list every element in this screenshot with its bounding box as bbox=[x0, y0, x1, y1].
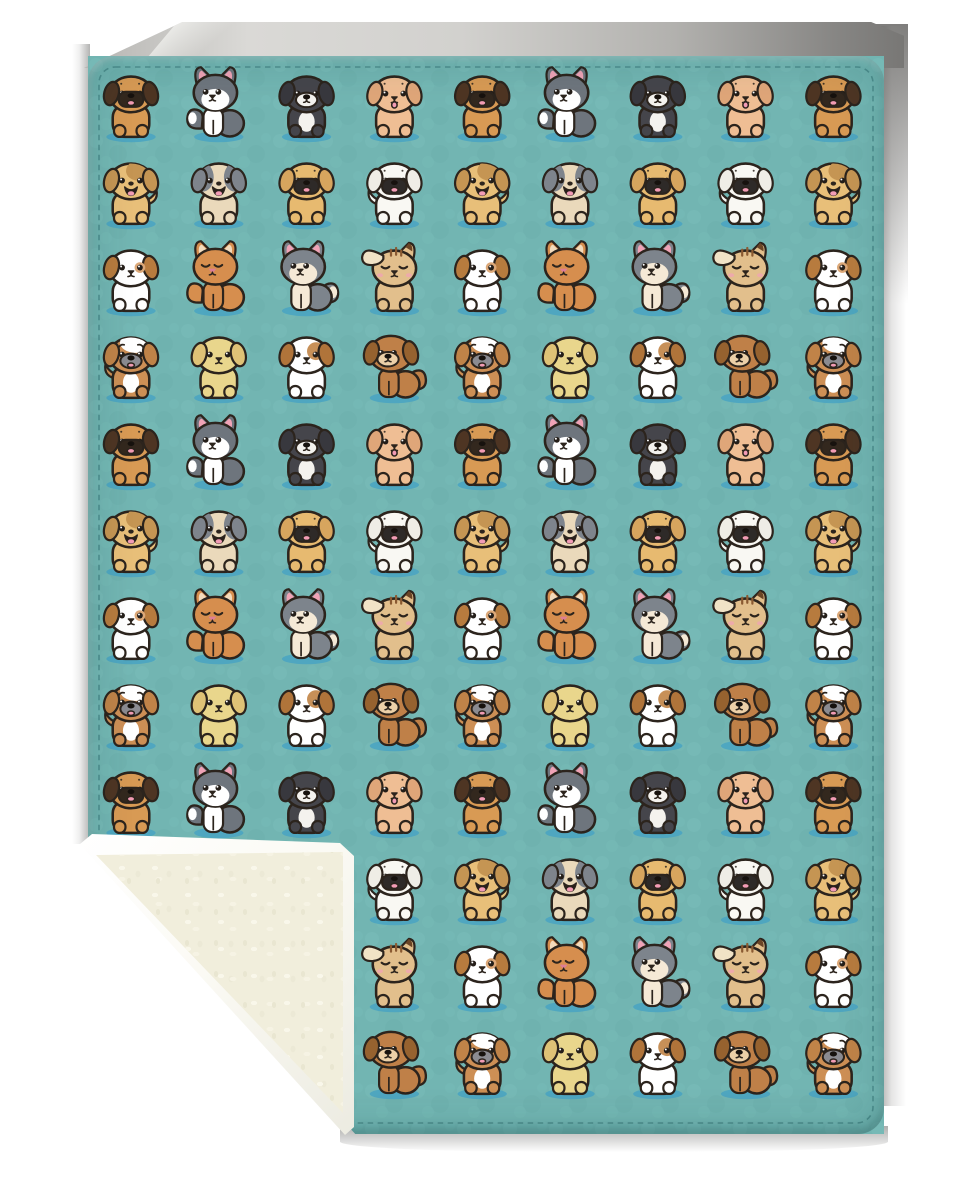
puppy-jack-russell-icon bbox=[102, 947, 161, 1013]
sherpa-fleece-back bbox=[80, 834, 354, 1135]
product-photo bbox=[0, 0, 960, 1180]
puppy-lab-yellow-icon bbox=[189, 1034, 248, 1100]
folded-corner bbox=[80, 834, 354, 1135]
puppy-bulldog-icon bbox=[102, 1028, 161, 1099]
